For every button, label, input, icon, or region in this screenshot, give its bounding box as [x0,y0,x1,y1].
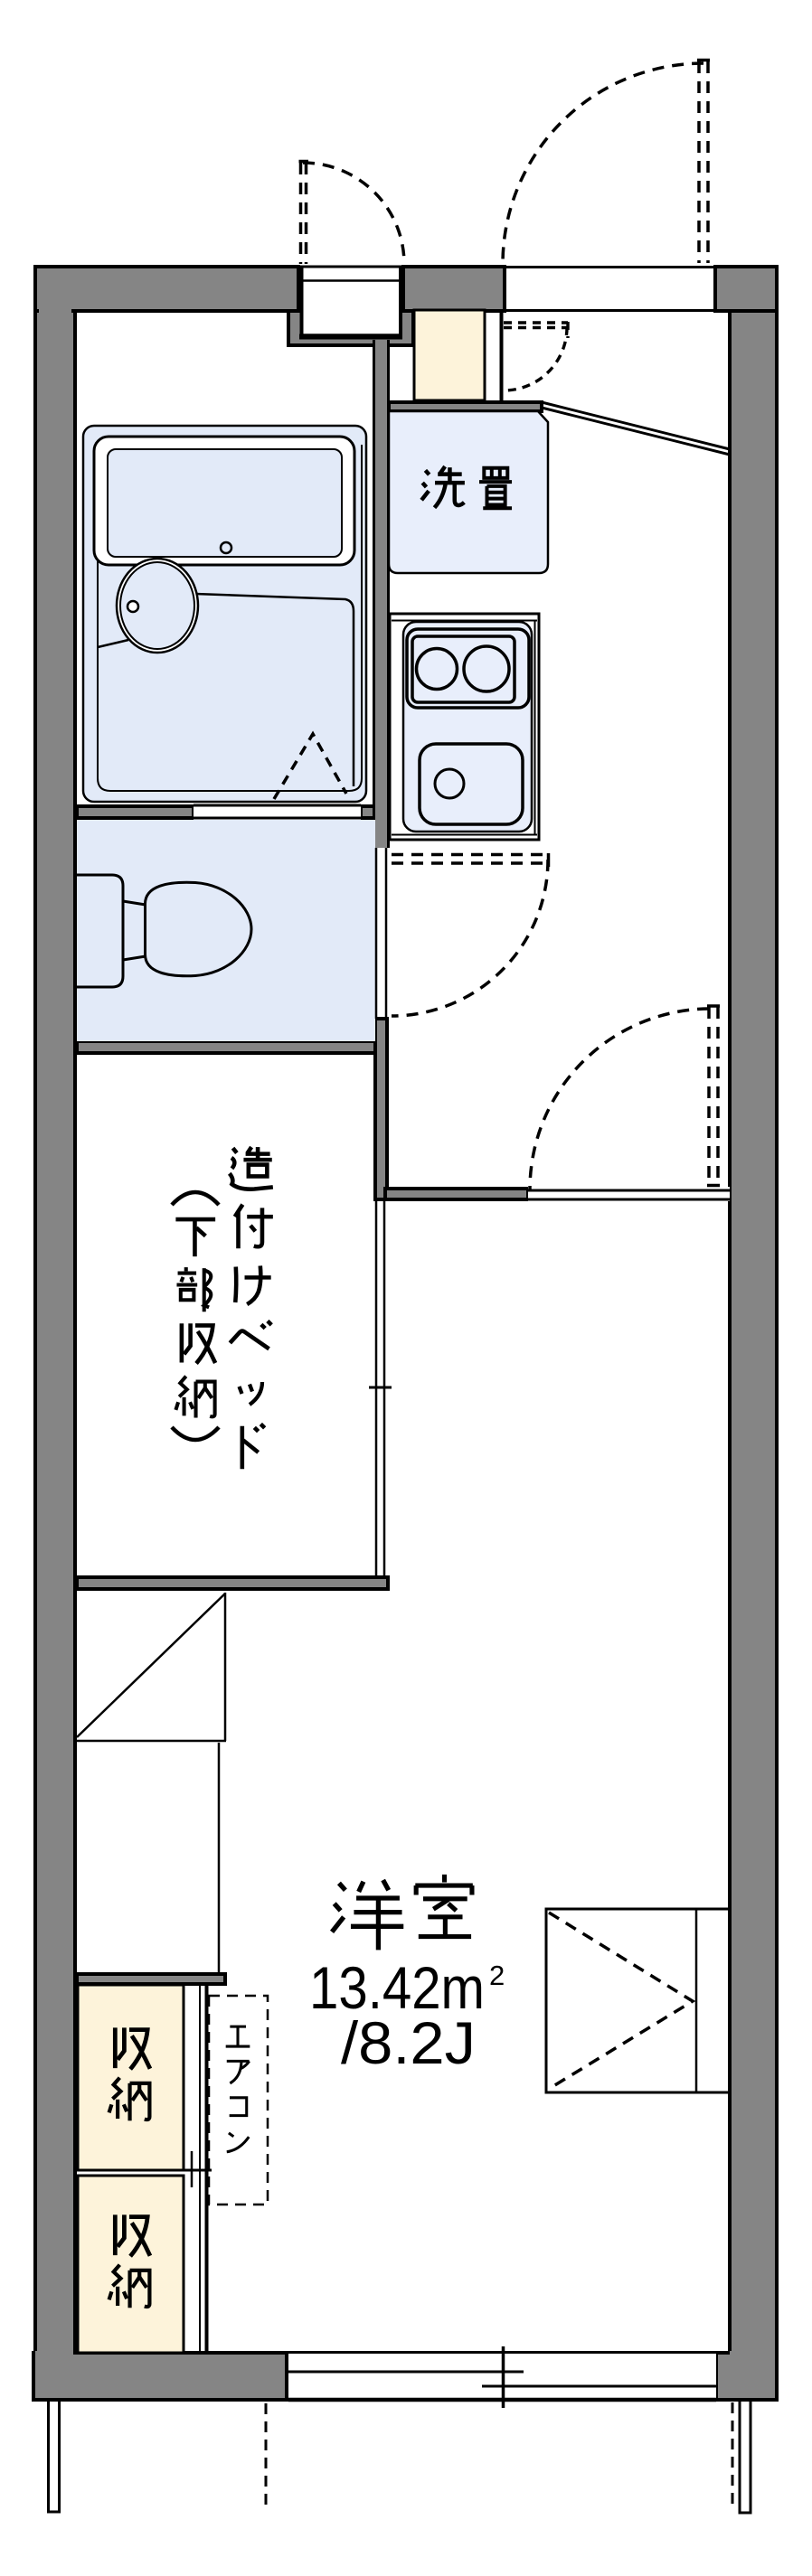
svg-text:/8.2J: /8.2J [341,2009,476,2076]
svg-text:2: 2 [489,1960,505,1991]
